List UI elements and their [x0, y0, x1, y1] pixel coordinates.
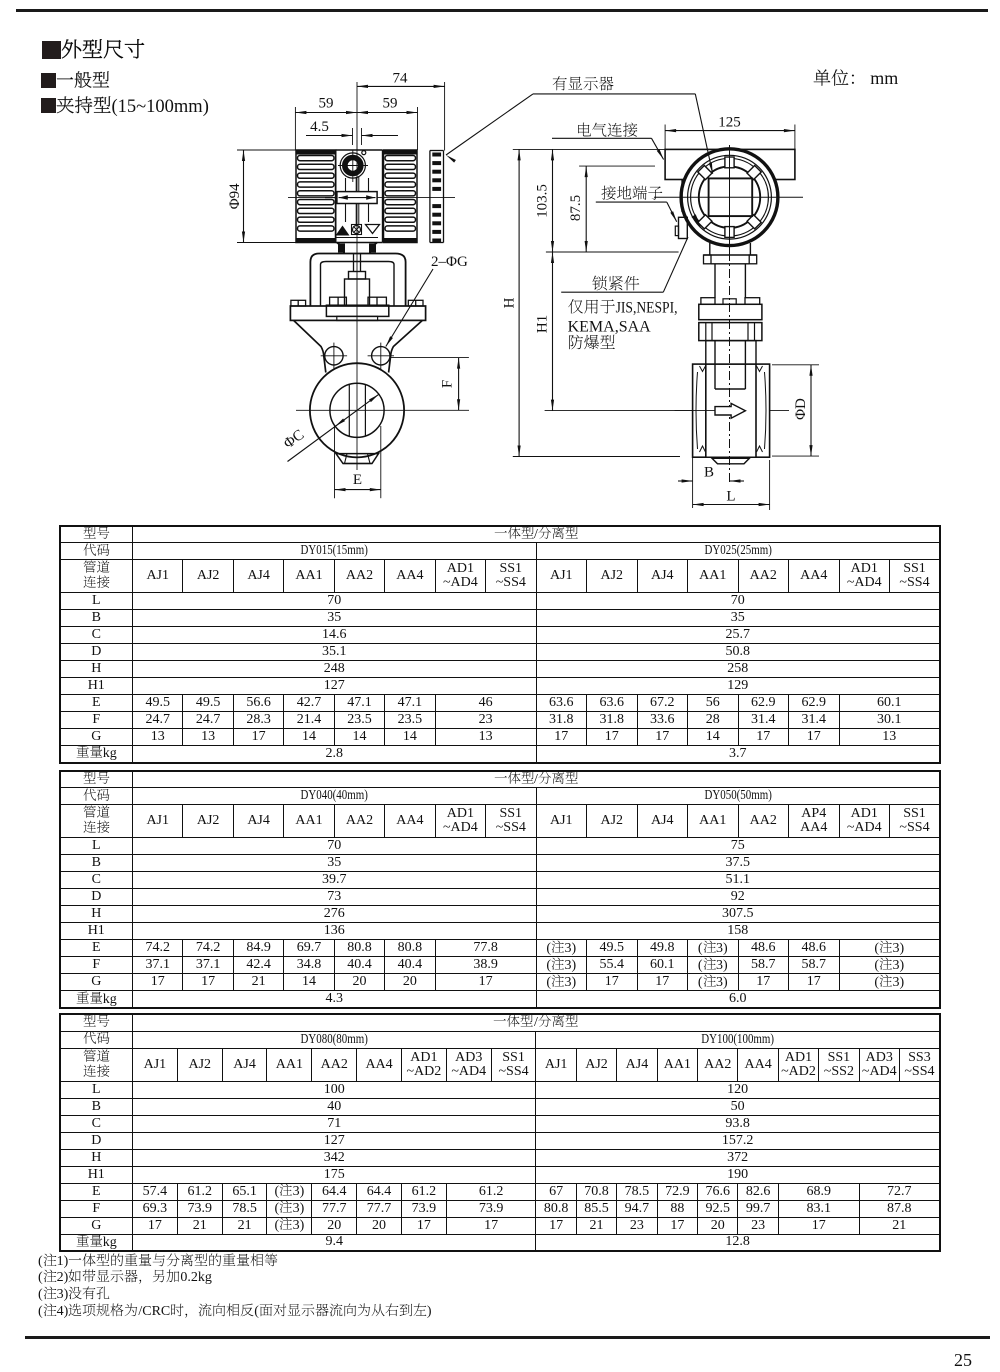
svg-text:F: F: [440, 380, 456, 388]
svg-text:87.5: 87.5: [568, 195, 584, 221]
svg-text:B: B: [704, 465, 714, 481]
svg-text:59: 59: [383, 96, 398, 112]
svg-text:103.5: 103.5: [535, 184, 551, 218]
svg-text:L: L: [726, 489, 735, 505]
svg-text:ΦC: ΦC: [281, 427, 307, 452]
svg-text:59: 59: [319, 96, 334, 112]
svg-text:Φ94: Φ94: [227, 183, 243, 209]
svg-text:E: E: [353, 472, 362, 488]
svg-text:ΦD: ΦD: [793, 398, 809, 420]
svg-text:4.5: 4.5: [310, 119, 329, 135]
svg-text:2–ΦG: 2–ΦG: [431, 254, 468, 270]
svg-text:JIS,NESPI,: JIS,NESPI,: [616, 299, 678, 316]
svg-text:H1: H1: [535, 315, 551, 333]
svg-text:74: 74: [393, 71, 409, 87]
svg-text:H: H: [502, 297, 518, 308]
svg-text:KEMA,SAA: KEMA,SAA: [568, 319, 652, 336]
svg-text:125: 125: [718, 115, 741, 131]
